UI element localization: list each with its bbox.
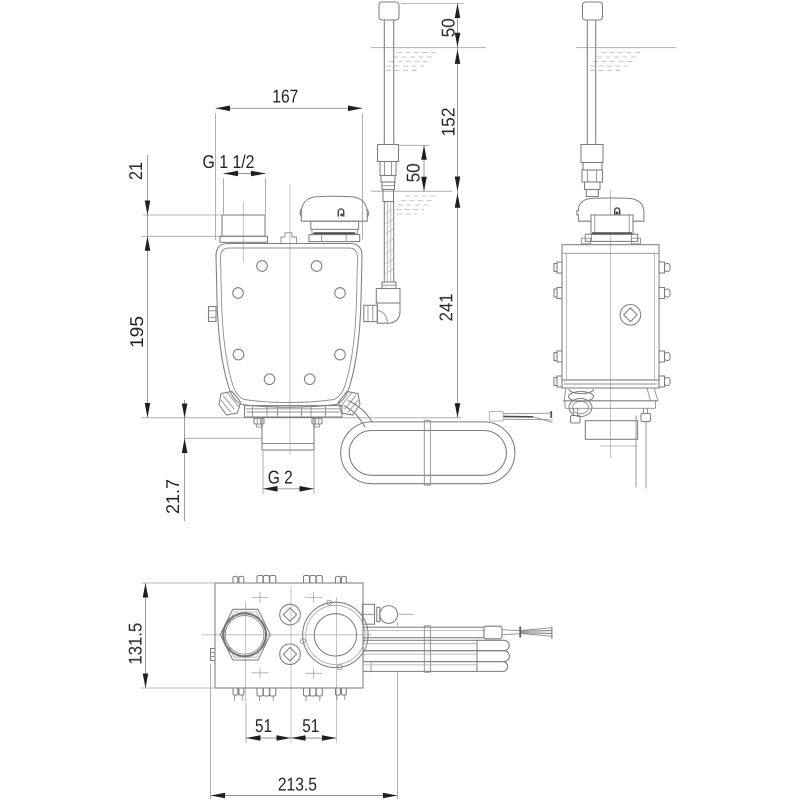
svg-text:50: 50 [438, 18, 459, 37]
svg-text:51: 51 [255, 715, 272, 736]
svg-text:G 1 1/2: G 1 1/2 [203, 151, 255, 172]
svg-text:131.5: 131.5 [125, 623, 146, 665]
svg-text:50: 50 [403, 163, 424, 182]
svg-text:195: 195 [126, 316, 147, 348]
svg-text:51: 51 [302, 715, 319, 736]
svg-text:21: 21 [125, 162, 146, 180]
svg-text:241: 241 [435, 293, 456, 321]
svg-text:G 2: G 2 [268, 467, 293, 488]
svg-text:152: 152 [438, 108, 459, 137]
svg-text:167: 167 [272, 86, 298, 107]
svg-text:21.7: 21.7 [162, 479, 183, 514]
svg-text:213.5: 213.5 [278, 774, 317, 795]
